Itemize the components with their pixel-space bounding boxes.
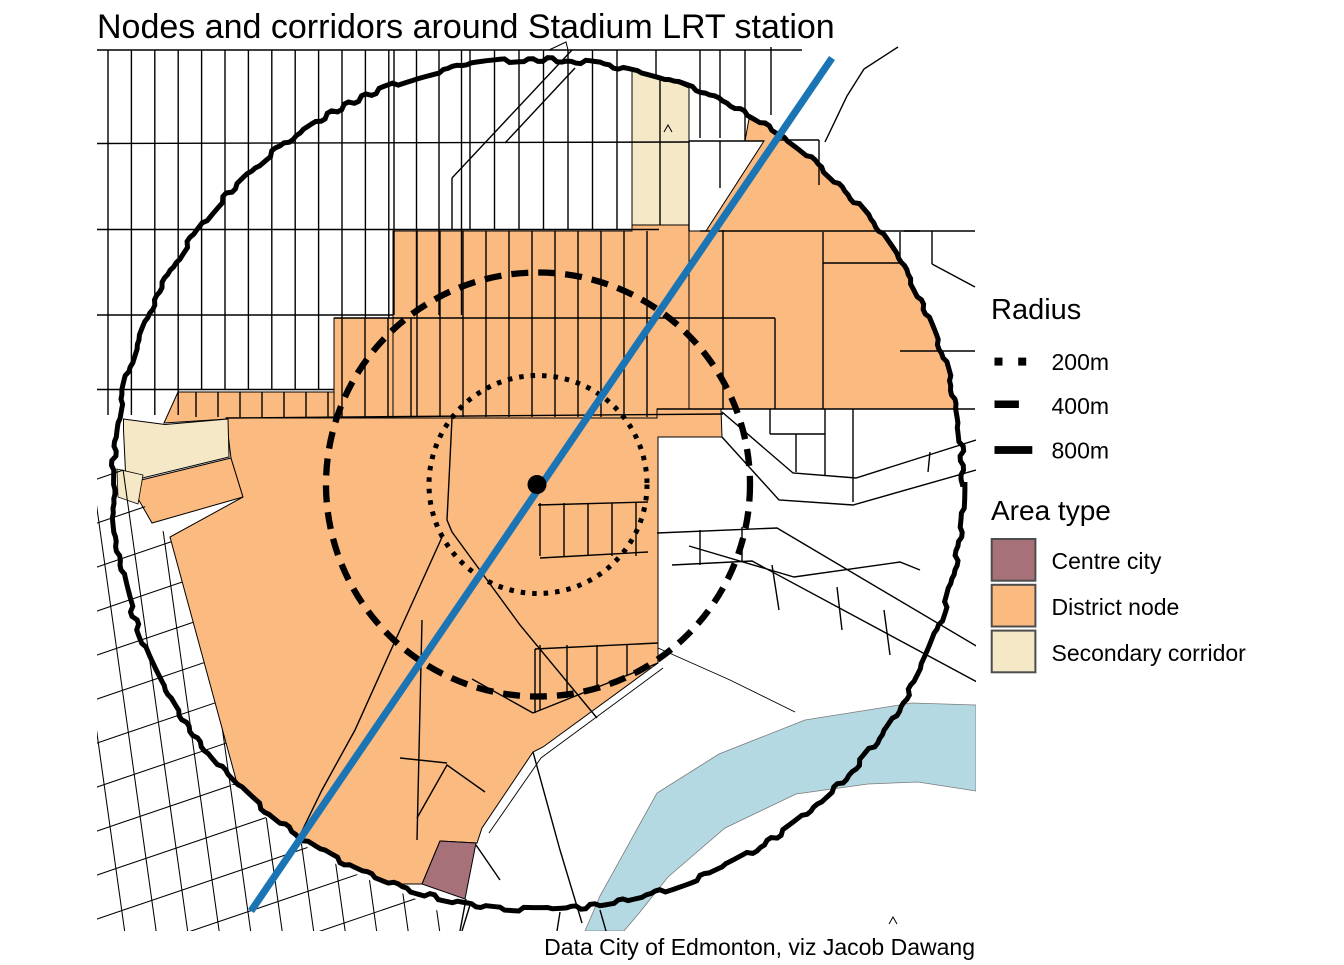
svg-text:Secondary corridor: Secondary corridor [1052,640,1247,666]
svg-text:200m: 200m [1052,349,1110,375]
svg-text:Centre city: Centre city [1052,548,1162,574]
svg-text:Area type: Area type [991,495,1111,526]
svg-text:Data City of Edmonton, viz Jac: Data City of Edmonton, viz Jacob Dawang [544,934,975,960]
svg-text:Nodes and corridors around Sta: Nodes and corridors around Stadium LRT s… [97,8,835,46]
svg-text:400m: 400m [1052,393,1110,419]
svg-text:800m: 800m [1052,438,1110,464]
svg-text:District node: District node [1052,594,1180,620]
svg-text:Radius: Radius [991,294,1081,326]
